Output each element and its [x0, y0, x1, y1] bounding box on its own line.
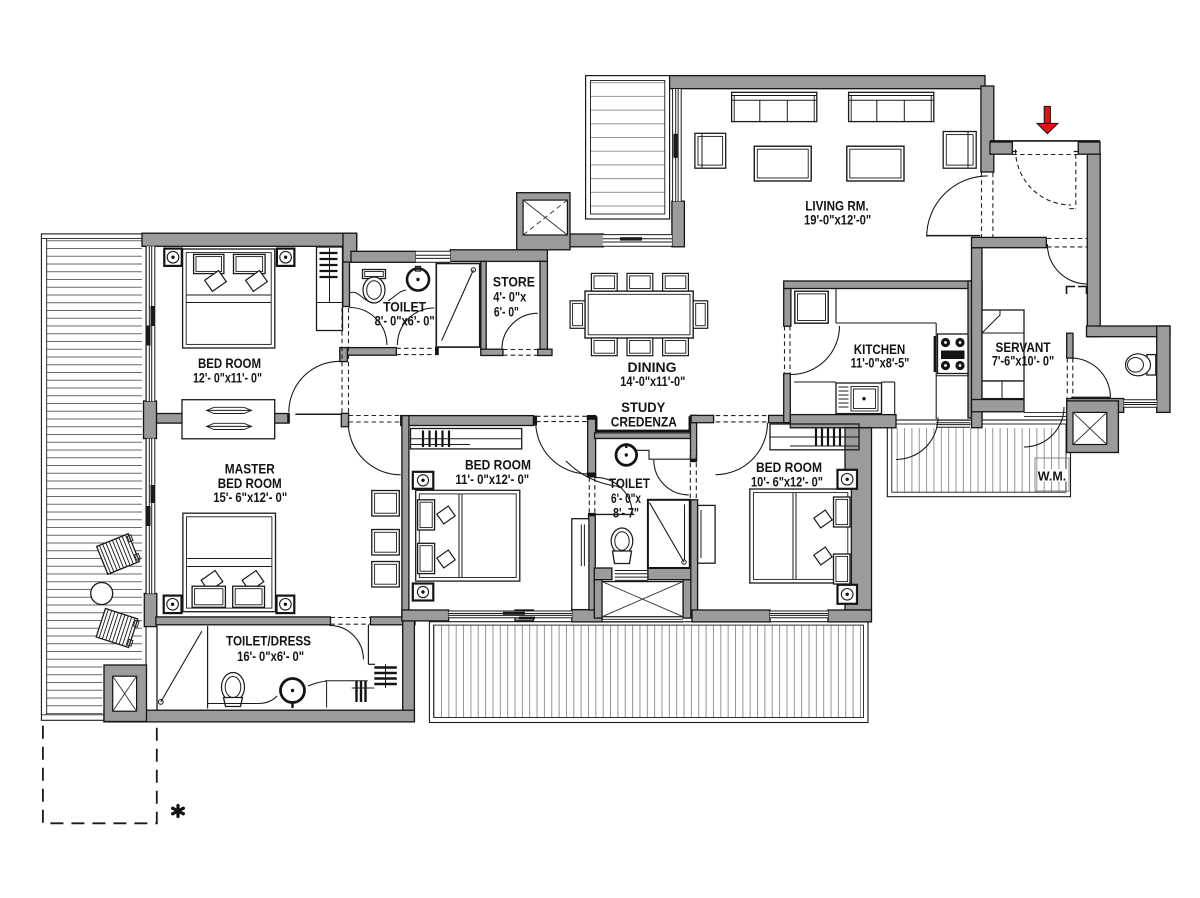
svg-text:15'- 6"x12'- 0": 15'- 6"x12'- 0": [213, 490, 287, 505]
svg-text:11'- 0"x12'- 0": 11'- 0"x12'- 0": [455, 472, 529, 487]
svg-text:SERVANT: SERVANT: [996, 339, 1051, 355]
svg-text:BED ROOM: BED ROOM: [756, 459, 822, 475]
svg-text:TOILET: TOILET: [609, 475, 650, 491]
svg-text:7'-6"x10'- 0": 7'-6"x10'- 0": [992, 354, 1054, 369]
svg-text:LIVING RM.: LIVING RM.: [805, 197, 868, 213]
svg-text:4'- 0"x: 4'- 0"x: [493, 290, 526, 305]
svg-text:BED ROOM: BED ROOM: [465, 457, 531, 473]
svg-text:STORE: STORE: [493, 273, 535, 289]
svg-text:12'- 0"x11'- 0": 12'- 0"x11'- 0": [193, 371, 262, 386]
svg-text:CREDENZA: CREDENZA: [611, 413, 677, 429]
svg-text:19'-0"x12'-0": 19'-0"x12'-0": [804, 213, 871, 228]
svg-text:KITCHEN: KITCHEN: [854, 341, 906, 357]
svg-text:8'- 0"x6'- 0": 8'- 0"x6'- 0": [375, 314, 435, 329]
svg-text:6'- 0": 6'- 0": [494, 304, 519, 319]
svg-text:DINING: DINING: [628, 359, 677, 375]
svg-text:BED ROOM: BED ROOM: [198, 355, 261, 371]
svg-text:TOILET/DRESS: TOILET/DRESS: [226, 633, 311, 649]
svg-text:TOILET: TOILET: [383, 298, 426, 314]
svg-text:10'- 6"x12'- 0": 10'- 6"x12'- 0": [751, 475, 823, 490]
svg-text:8'- 7": 8'- 7": [613, 506, 639, 521]
svg-text:16'- 0"x6'- 0": 16'- 0"x6'- 0": [237, 649, 304, 664]
svg-text:11'-0"x8'-5": 11'-0"x8'-5": [851, 356, 910, 371]
svg-text:W.M.: W.M.: [1038, 469, 1067, 483]
svg-text:BED ROOM: BED ROOM: [218, 475, 282, 491]
svg-text:6'- 0"x: 6'- 0"x: [611, 491, 641, 506]
svg-text:14'-0"x11'-0": 14'-0"x11'-0": [620, 374, 685, 389]
